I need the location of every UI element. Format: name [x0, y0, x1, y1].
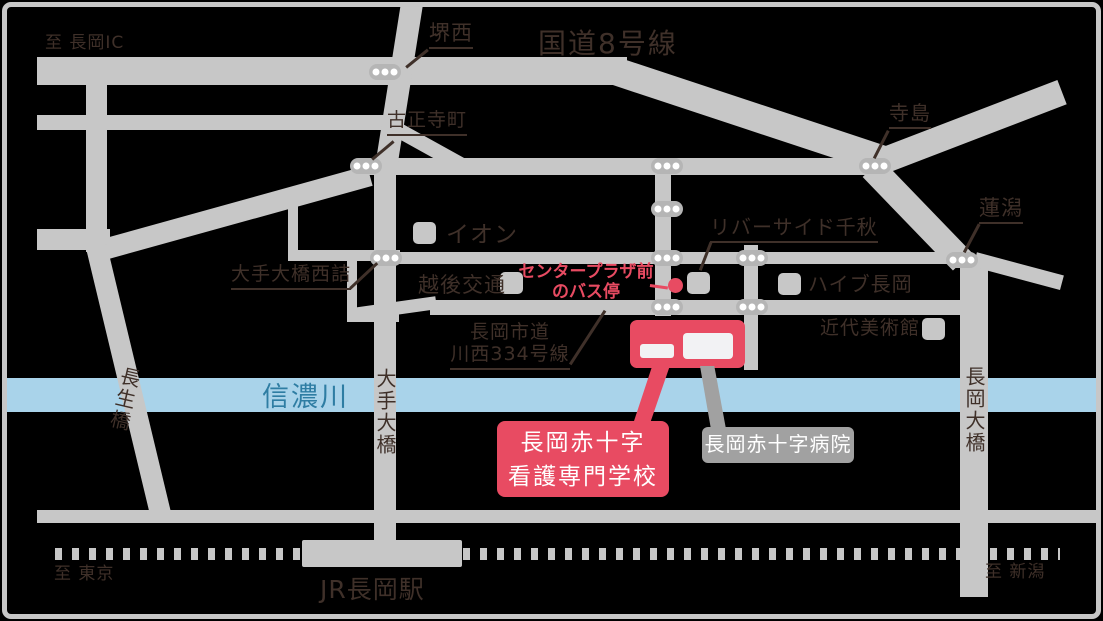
bus-stop-marker: [651, 158, 683, 174]
bus-stop-marker-terajima: [859, 158, 891, 174]
terajima-label: 寺島: [889, 102, 931, 129]
nagaoka-bridge-label: 長岡大橋: [964, 366, 984, 454]
hasugata-connector: [963, 223, 980, 252]
hasugata-label: 蓮潟: [979, 196, 1023, 224]
to-nagaoka-ic-label: 至 長岡IC: [45, 34, 124, 54]
ote-bridge-label: 大手大橋: [375, 368, 395, 456]
city-road-connector-line: [569, 310, 606, 365]
school-callout-line1: 長岡赤十字: [497, 426, 669, 460]
museum-icon: [922, 318, 945, 340]
riverside-senshu-icon: [687, 272, 710, 294]
aeon-icon: [413, 222, 436, 244]
center-plaza-bus-stop-dot: [668, 278, 683, 293]
hive-nagaoka-label: ハイブ長岡: [808, 273, 913, 296]
bus-stop-marker: [651, 250, 683, 266]
riverside-senshu-label: リバーサイド千秋: [710, 216, 878, 243]
museum-label: 近代美術館: [820, 318, 920, 340]
center-plaza-label: センタープラザ前 のバス停: [518, 263, 654, 302]
city-road-label: 長岡市道 川西334号線: [450, 322, 570, 370]
center-plaza-label-line2: のバス停: [518, 283, 654, 303]
bus-stop-marker-sakai-nishi: [369, 64, 401, 80]
road-ote-street: [374, 165, 396, 545]
city-road-label-line1: 長岡市道: [450, 322, 570, 344]
center-plaza-label-line1: センタープラザ前: [518, 263, 654, 283]
city-road-label-line2: 川西334号線: [450, 344, 570, 366]
bus-stop-marker: [651, 299, 683, 315]
bus-stop-marker: [651, 201, 683, 217]
hospital-callout: 長岡赤十字病院: [702, 427, 854, 463]
hospital-building-block: [683, 333, 733, 359]
road-route8-diagonal: [611, 58, 890, 174]
road-left-vertical: [86, 57, 107, 252]
school-callout: 長岡赤十字 看護専門学校: [497, 421, 669, 497]
school-callout-line2: 看護専門学校: [497, 460, 669, 494]
road-left-diagonal: [97, 166, 372, 261]
road-route8-west: [37, 57, 627, 85]
jr-station-block: [302, 540, 462, 567]
bus-stop-marker-koshoji: [350, 158, 382, 174]
to-tokyo-label: 至 東京: [54, 565, 114, 585]
shinano-river: [7, 378, 1096, 412]
echigo-kotsu-label: 越後交通: [418, 273, 506, 297]
sakai-nishi-label: 堺西: [429, 21, 473, 49]
jr-railway-line: [55, 548, 1060, 560]
road-city334: [430, 300, 965, 315]
road-thin-horizontal-2: [347, 312, 399, 322]
ote-nishizume-label: 大手大橋西詰: [231, 264, 351, 290]
hive-nagaoka-icon: [778, 273, 801, 295]
route8-label: 国道8号線: [538, 28, 678, 60]
school-building-wing-small: [640, 344, 674, 358]
koshoji-label: 古正寺町: [387, 110, 467, 136]
road-center-vertical: [655, 158, 671, 316]
access-map: 信濃川 至 長岡IC 至 東京 至 新潟: [0, 0, 1103, 621]
river-label: 信濃川: [262, 382, 349, 413]
bus-stop-marker-hasugata: [946, 252, 978, 268]
bus-stop-marker: [736, 250, 768, 266]
aeon-label: イオン: [446, 222, 518, 248]
jr-station-label: JR長岡駅: [320, 576, 425, 605]
road-bottom: [37, 510, 1097, 523]
to-niigata-label: 至 新潟: [985, 563, 1045, 583]
bus-stop-marker: [736, 299, 768, 315]
